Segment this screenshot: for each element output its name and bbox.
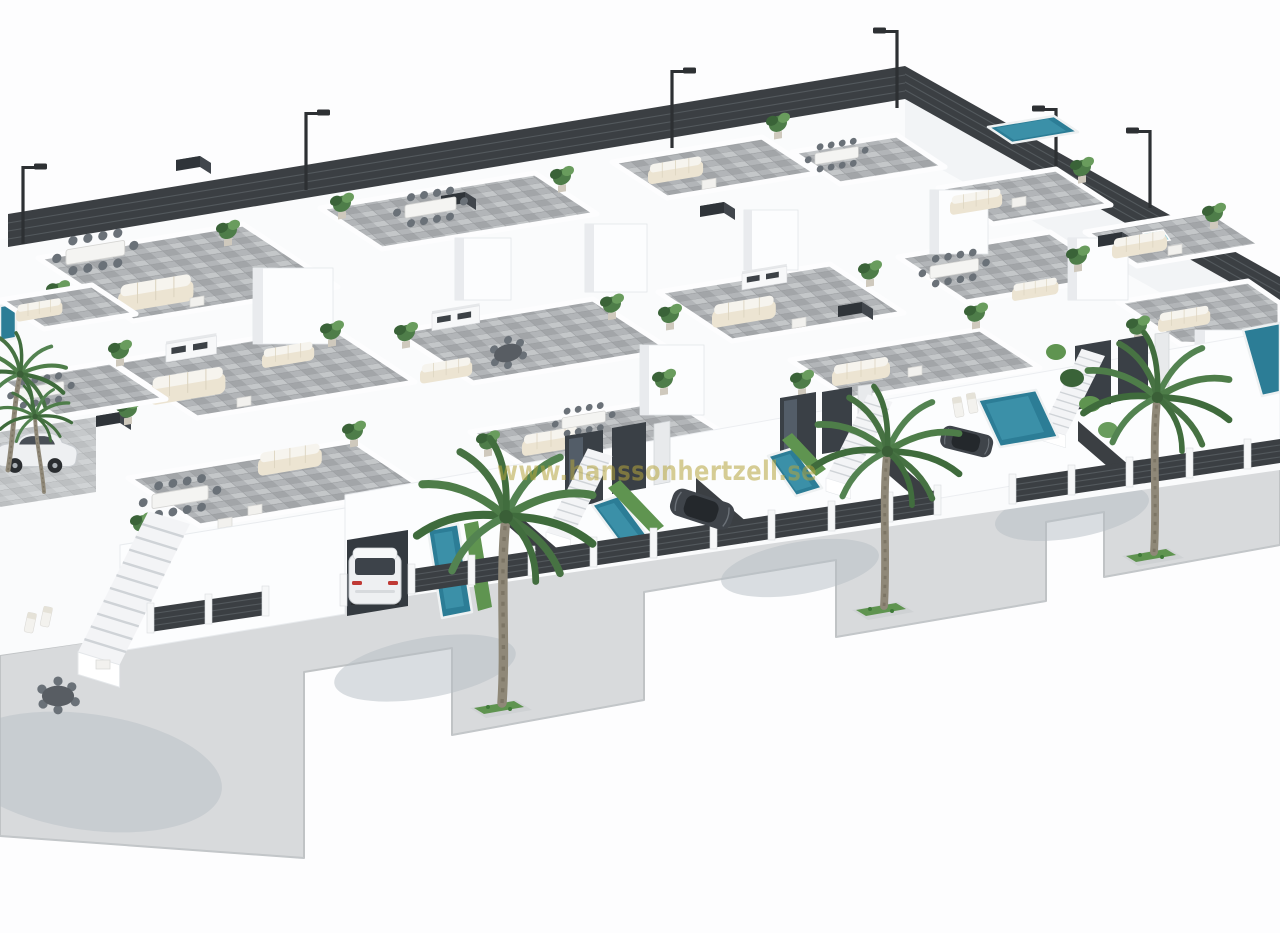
coffee-table	[908, 366, 922, 377]
roof-structure	[585, 224, 647, 292]
architectural-render: www.hanssonhertzell.se	[0, 0, 1280, 933]
coffee-table	[1012, 196, 1026, 207]
coffee-table	[702, 178, 716, 189]
garden-bush	[1060, 369, 1084, 387]
coffee-table	[248, 504, 262, 515]
white-hatchback	[349, 548, 401, 605]
watermark: www.hanssonhertzell.se	[497, 456, 817, 487]
coffee-table	[190, 296, 204, 307]
roof-structure	[744, 210, 798, 270]
roof-structure	[455, 238, 511, 300]
render-canvas: www.hanssonhertzell.se	[0, 0, 1280, 933]
coffee-table	[237, 396, 251, 407]
roof-structure	[253, 268, 333, 344]
coffee-table	[1168, 244, 1182, 255]
coffee-table	[792, 317, 806, 328]
garden-bush	[1046, 344, 1066, 360]
coffee-table	[96, 660, 110, 669]
